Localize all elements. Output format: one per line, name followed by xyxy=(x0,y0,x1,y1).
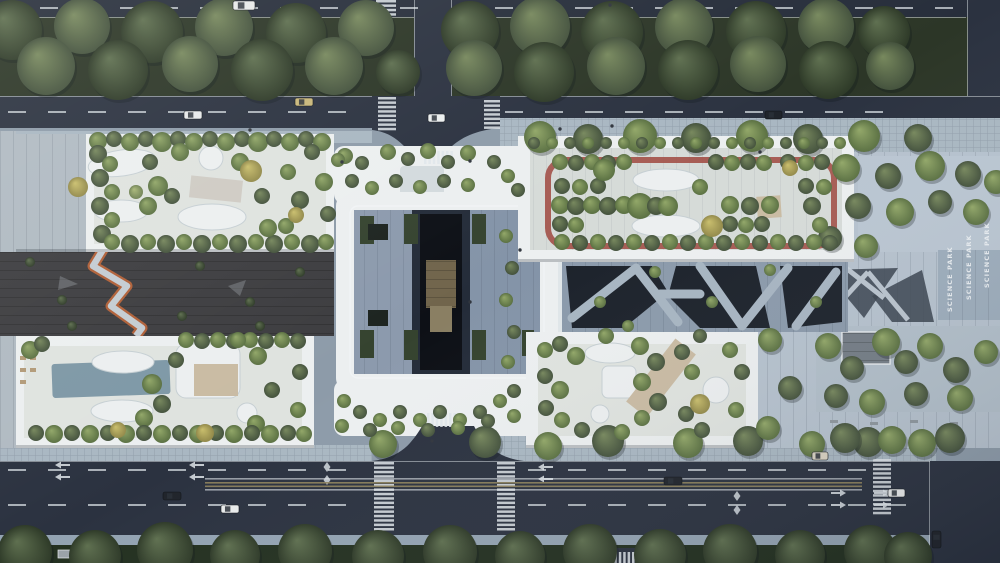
aerial-campus-render: SCIENCE PARKSCIENCE PARKSCIENCE PARK xyxy=(0,0,1000,563)
daylight-overlay xyxy=(0,0,1000,563)
scene-svg: SCIENCE PARKSCIENCE PARKSCIENCE PARK xyxy=(0,0,1000,563)
